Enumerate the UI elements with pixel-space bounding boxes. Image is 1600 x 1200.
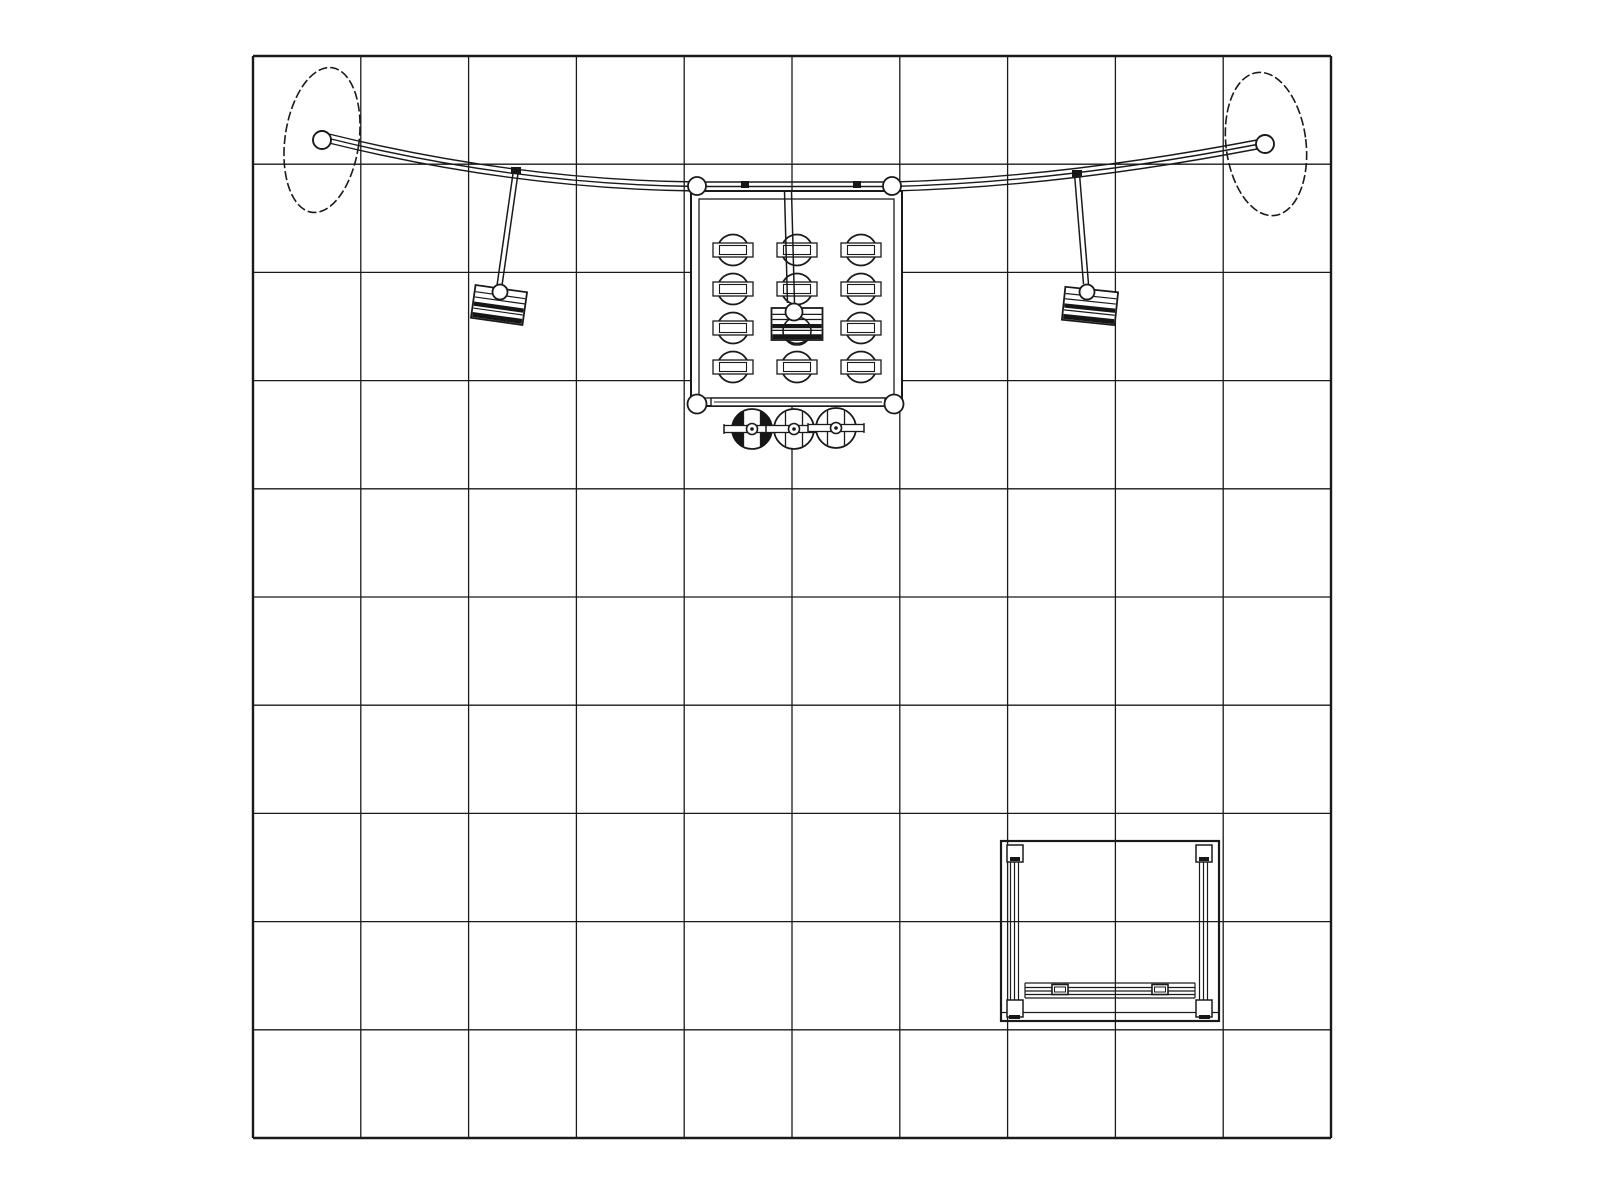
beam-junction-hub xyxy=(688,177,706,195)
disc-hub xyxy=(1256,135,1274,153)
cad-canvas xyxy=(0,0,1600,1200)
post-tick xyxy=(1199,857,1209,861)
post-tick xyxy=(1199,1015,1210,1019)
fixture-stripe-band xyxy=(773,334,822,339)
stool xyxy=(808,408,864,448)
arm-tube-line xyxy=(502,170,519,289)
display-counter xyxy=(1001,841,1219,1021)
beam-junction-hub xyxy=(883,177,901,195)
left-light-arm xyxy=(497,170,519,289)
stool-hub-dot xyxy=(750,427,754,431)
arm-hub xyxy=(786,304,803,321)
disc-hub xyxy=(313,131,331,149)
arm-tube-line xyxy=(497,170,514,289)
beam-clamp xyxy=(741,181,749,188)
stool-hub-dot xyxy=(792,427,796,431)
arm-tube-line xyxy=(1075,174,1084,284)
counter-post xyxy=(1196,845,1212,1019)
booth-plan-drawing xyxy=(0,0,1600,1200)
fixture-stripe-band xyxy=(773,324,822,328)
frame-corner-hub xyxy=(885,395,904,414)
counter-rail xyxy=(1025,983,1195,998)
beam-clamp xyxy=(1072,170,1082,177)
post-cap xyxy=(1196,1000,1212,1017)
stool-hub-dot xyxy=(834,426,838,430)
post-cap xyxy=(1007,1000,1023,1017)
arm-hub xyxy=(1080,285,1095,300)
beam-clamp xyxy=(853,181,861,188)
post-tick xyxy=(1010,857,1020,861)
counter-post xyxy=(1007,845,1023,1019)
post-tick xyxy=(1009,1015,1020,1019)
arm-tube-line xyxy=(1080,174,1089,284)
frame-corner-hub xyxy=(688,395,707,414)
right-light-arm xyxy=(1075,174,1089,284)
arm-hub xyxy=(493,285,508,300)
